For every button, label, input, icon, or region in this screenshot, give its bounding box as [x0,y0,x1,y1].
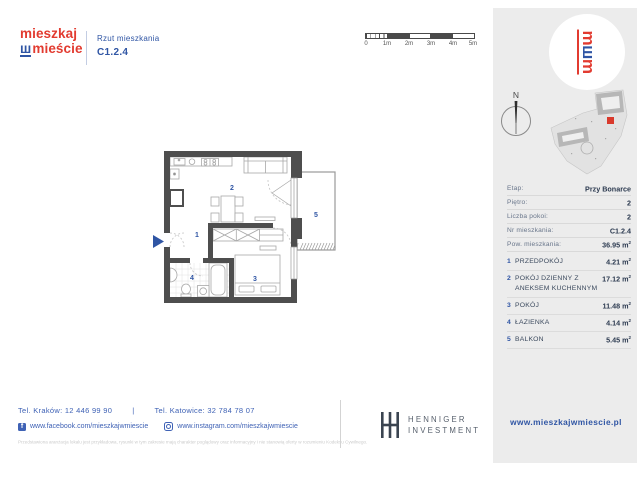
balcony [297,172,335,250]
legal-disclaimer: Przedstawiona aranżacja lokalu jest przy… [18,440,320,445]
scale-labels: 0 1m 2m 3m 4m 5m [365,41,475,49]
balcony-door-leaf [272,180,291,206]
badge-letter: m [579,31,598,46]
developer-name-line1: HENNIGER [408,414,480,425]
mwm-monogram: mшm [577,30,597,75]
wardrobe [213,229,283,241]
sideboard [255,217,275,221]
document-title-block: Rzut mieszkania C1.2.4 [97,34,159,58]
row-value: 2 [627,198,631,207]
scale-label: 1m [383,41,391,47]
list-item: 4 ŁAZIENKA 4.14 m2 [507,315,631,332]
room-area: 4.14 m2 [606,318,631,329]
brand-word-2: mieście [32,41,82,56]
facebook-url: www.facebook.com/mieszkajwmiescie [30,423,148,430]
bed [235,255,280,295]
row-label: Nr mieszkania: [507,227,553,234]
plan-label-room-3: 3 [253,276,257,283]
row-value: 36.95 m2 [602,240,631,249]
scale-seg-4 [452,34,474,38]
website-link[interactable]: www.mieszkajwmiescie.pl [495,417,637,427]
plan-label-room-4: 4 [190,275,194,282]
info-table: Etap: Przy Bonarce Piętro: 2 Liczba poko… [507,182,631,252]
developer-name: HENNIGER INVESTMENT [408,414,480,437]
bathtub [209,263,227,297]
scale-label: 0 [364,41,367,47]
badge-letter: ш [579,45,598,59]
document-type: Rzut mieszkania [97,34,159,43]
row-label: Etap: [507,185,523,192]
entrance-arrow-icon [153,235,164,248]
tel-separator: | [132,406,134,415]
badge-letter: m [579,59,598,74]
shaft-box [170,169,179,179]
list-item: 2 POKÓJ DZIENNY Z ANEKSEM KUCHENNYM 17.1… [507,271,631,297]
room-name: POKÓJ DZIENNY Z ANEKSEM KUCHENNYM [515,274,598,294]
row-value: C1.2.4 [610,226,631,235]
footer-divider [340,400,341,448]
room-number: 3 [507,301,515,311]
room-name: POKÓJ [515,301,599,311]
row-label: Liczba pokoi: [507,213,548,220]
henniger-monogram-icon [380,412,400,438]
washing-machine [198,286,210,298]
list-item: 5 BALKON 5.45 m2 [507,332,631,349]
instagram-link[interactable]: www.instagram.com/mieszkajwmiescie [164,422,298,431]
facebook-icon: f [18,423,26,431]
compass: N [496,88,536,144]
brand-word-1: mieszkaj [20,26,77,41]
scale-seg-1 [387,34,409,38]
walls [164,151,302,303]
compass-north-label: N [513,90,519,100]
room-number: 1 [507,257,515,267]
unit-code: C1.2.4 [97,47,159,58]
closet-box [170,190,183,206]
room-name: BALKON [515,335,602,345]
plan-label-room-2: 2 [230,185,234,192]
site-plan-map [545,88,637,176]
table-row: Nr mieszkania: C1.2.4 [507,224,631,238]
dining-table [211,196,243,222]
room-area: 11.48 m2 [603,301,632,312]
plan-label-room-1: 1 [195,232,199,239]
brand-w-mark: ш [20,42,31,58]
scale-label: 3m [427,41,435,47]
flyer-page: { "brand": { "logo_word1": "mieszkaj", "… [0,0,640,480]
compass-needle [515,101,518,123]
mwm-badge: mшm [549,14,625,90]
developer-logo: HENNIGER INVESTMENT [380,412,480,438]
floor-plan: 1 2 3 4 5 [145,133,345,343]
table-row: Liczba pokoi: 2 [507,210,631,224]
room-number: 4 [507,318,515,328]
bedroom-shelf [260,246,276,250]
room-area: 4.21 m2 [606,257,631,268]
header-divider [86,31,87,65]
developer-name-line2: INVESTMENT [408,425,480,436]
social-links: f www.facebook.com/mieszkajwmiescie www.… [18,422,298,431]
row-value: 2 [627,212,631,221]
phone-numbers: Tel. Kraków: 12 446 99 90 | Tel. Katowic… [18,406,255,415]
scale-label: 5m [469,41,477,47]
scale-seg-2 [409,34,431,38]
room-area: 5.45 m2 [606,335,631,346]
row-label: Piętro: [507,199,527,206]
table-row: Etap: Przy Bonarce [507,182,631,196]
table-row: Piętro: 2 [507,196,631,210]
scale-bar-strip [365,33,475,39]
scale-label: 2m [405,41,413,47]
sofa [244,157,287,173]
room-number: 5 [507,335,515,345]
row-value: Przy Bonarce [585,184,631,193]
scale-label: 4m [449,41,457,47]
scale-seg-3 [430,34,452,38]
room-name: PRZEDPOKÓJ [515,257,602,267]
tel-katowice: Tel. Katowice: 32 784 78 07 [154,406,254,415]
scale-bar: 0 1m 2m 3m 4m 5m [365,33,475,49]
instagram-url: www.instagram.com/mieszkajwmiescie [177,423,298,430]
toilet [181,284,191,297]
unit-location-marker [607,117,614,124]
kitchen-counter [170,157,232,166]
plan-label-room-5: 5 [314,212,318,219]
instagram-icon [164,422,173,431]
list-item: 1 PRZEDPOKÓJ 4.21 m2 [507,254,631,271]
table-row: Pow. mieszkania: 36.95 m2 [507,238,631,252]
room-list: 1 PRZEDPOKÓJ 4.21 m2 2 POKÓJ DZIENNY Z A… [507,254,631,349]
room-number: 2 [507,274,515,284]
tel-krakow: Tel. Kraków: 12 446 99 90 [18,406,112,415]
room-area: 17.12 m2 [602,274,631,285]
facebook-link[interactable]: f www.facebook.com/mieszkajwmiescie [18,423,148,431]
room-name: ŁAZIENKA [515,318,602,328]
list-item: 3 POKÓJ 11.48 m2 [507,298,631,315]
brand-logo: mieszkaj шmieście [20,27,83,57]
scale-seg-0 [366,34,387,38]
row-label: Pow. mieszkania: [507,241,561,248]
